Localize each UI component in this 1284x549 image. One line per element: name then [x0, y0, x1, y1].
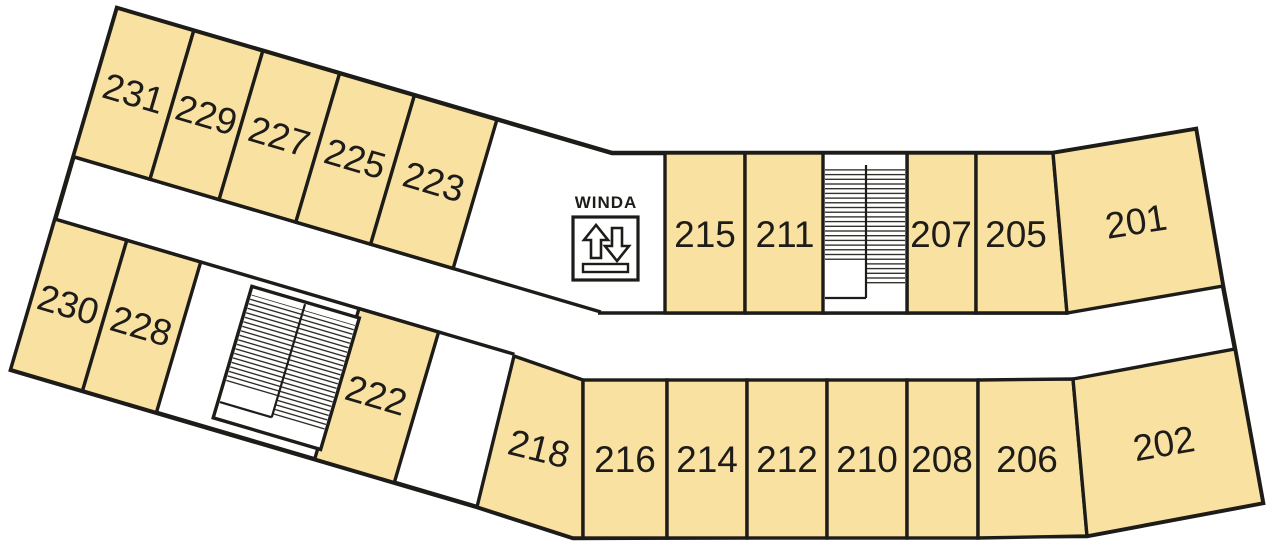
elevator-label: WINDA [575, 193, 638, 212]
elevator-icon [573, 217, 638, 280]
stairwell-upper-middle [823, 153, 907, 313]
room-label-211: 211 [756, 214, 815, 255]
room-label-214: 214 [676, 439, 738, 480]
room-label-215: 215 [674, 214, 736, 255]
stair-treads-right-flight [866, 168, 905, 284]
room-label-205: 205 [985, 214, 1047, 255]
room-label-208: 208 [911, 439, 973, 480]
room-label-210: 210 [836, 439, 898, 480]
room-label-212: 212 [756, 439, 818, 480]
elevator-platform-icon [583, 264, 628, 272]
room-label-206: 206 [996, 439, 1058, 480]
stair-treads-left-flight [825, 168, 866, 263]
floor-plan-page: 231 229 227 225 223 230 228 222 WINDA [0, 0, 1284, 549]
floor-plan: 231 229 227 225 223 230 228 222 WINDA [0, 0, 1284, 549]
room-label-216: 216 [594, 439, 656, 480]
elevator-lobby: WINDA [573, 193, 638, 280]
room-label-207: 207 [910, 214, 972, 255]
